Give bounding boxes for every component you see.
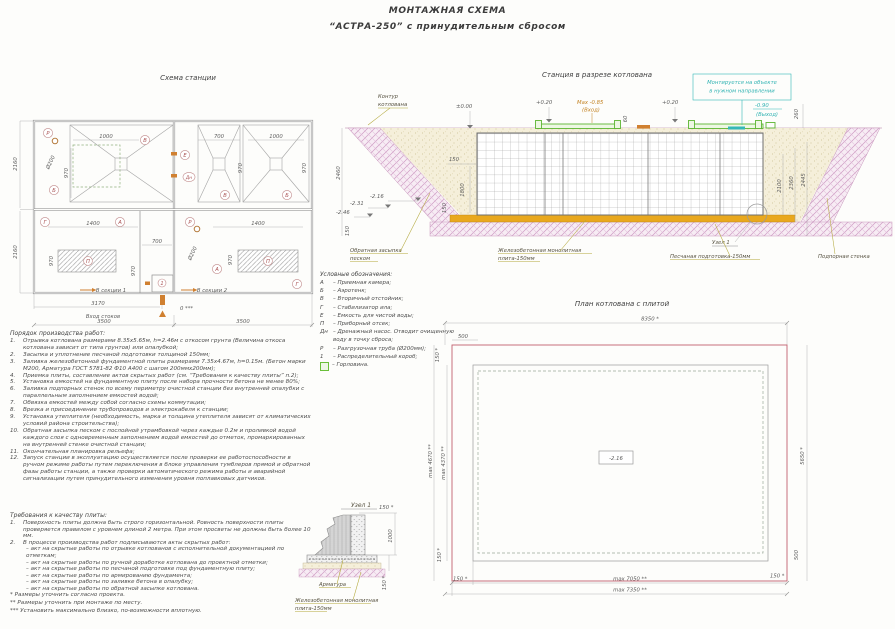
plan-title: Схема станции [160,74,216,82]
elev-246: -2.46 [336,210,350,216]
node-label-rebar: Арматура [318,582,346,588]
hidden-work-act: – акт на скрытые работы по отрывке котло… [10,546,312,559]
dim-2360: 2360 [789,176,795,190]
dim-1000-left: 1000 [99,134,113,140]
label-contour-1: Контур [378,94,399,100]
dim-3500-left: 3500 [97,319,111,325]
work-item: 10.Обратная засыпка песком с послойной у… [10,428,312,449]
dim-1000-right: 1000 [269,134,283,140]
dim-500-top: 500 [458,334,469,340]
outlet-note-2: в нужном направлении [709,89,775,95]
work-item: 2.Засыпка и уплотнение песчаной подготов… [10,352,312,359]
work-item: 9.Установка утеплителя (необходимость, м… [10,414,312,428]
manhole-icon [320,362,329,371]
dim-700-bottom: 700 [152,239,163,245]
work-item: 12.Запуск станции в эксплуатацию осущест… [10,455,312,483]
elev-020-a: +0.20 [536,100,553,106]
work-item: 7.Обвязка емкостей между собой согласно … [10,400,312,407]
pitplan-title: План котлована с плитой [575,300,670,308]
elev-0: ±0.00 [456,104,473,110]
elev-231: -2.31 [350,201,364,207]
work-item: 5.Установка емкостей на фундаментную пли… [10,379,312,386]
node-dim-150-top: 150 * [379,505,394,511]
label-B-topleft: Б [52,188,56,194]
dim-970-d: 970 [49,255,55,266]
dim-4670: max 4670 ** [428,444,434,478]
footnote: ** Размеры уточнить при монтаже по месту… [10,599,312,607]
dim-970-c: 970 [302,162,308,173]
dim-8350: 8350 * [641,317,659,323]
label-backfill-1: Обратная засыпка [350,248,402,254]
dim-500-right: 500 [794,549,800,560]
dim-970-e: 970 [131,265,137,276]
label-backfill-2: песком [350,256,370,262]
label-P-left: П [86,259,90,265]
hidden-work-act: – акт на скрытые работы по армированию ф… [10,573,312,580]
montage-scheme-sheet: МОНТАЖНАЯ СХЕМА “АСТРА-250” с принудител… [0,0,895,629]
dim-2460: 2460 [336,166,342,180]
label-contour-2: котлована [378,102,407,108]
label-DN: Дн [185,175,192,181]
label-B-topright: Б [285,193,289,199]
page-title: МОНТАЖНАЯ СХЕМА [0,6,895,16]
work-item: 3.Заливка железобетонной фундаментной пл… [10,359,312,373]
label-A-right: А [214,267,219,273]
legend-title: Условные обозначения: [320,272,460,278]
work-order: Порядок производства работ: 1.Отрывка ко… [10,330,312,483]
label-V-topleft: В [143,138,147,144]
label-P-right: П [266,259,270,265]
dim-970-f: 970 [228,254,234,265]
dim-2160-bottom: 2160 [13,245,19,259]
work-item: 11.Окончательная планировка рельефа; [10,449,312,456]
dim-7350: max 7350 ** [613,588,647,594]
dim-4370: max 4370 ** [441,446,447,480]
note-section2: В секции 2 [197,288,228,294]
elev-pit-216: -2.16 [609,456,623,462]
footnotes: * Размеры уточнить согласно проекта. ** … [10,591,312,615]
note-section1: В секции 1 [96,288,126,294]
work-item: 6.Заливка подпорных стенок по всему пери… [10,386,312,400]
footnote: *** Установить максимально близко, по-во… [10,607,312,615]
dim-700-top: 700 [214,134,225,140]
dim-5650: 5650 * [800,447,806,465]
dim-150-b: 150 [442,202,448,213]
dim-1800: 1800 [460,183,466,197]
node-dim-1000: 1000 [388,529,394,543]
req-item: 1.Поверхность плиты должна быть строго г… [10,520,312,540]
dim-970-a: 970 [64,167,70,178]
dim-7050: max 7050 ** [613,577,647,583]
dim-3170: 3170 [91,301,105,307]
dim-2445: 2445 [801,173,807,187]
dim-zero: 0 *** [180,306,193,312]
outlet-note-1: Монтируется на объекте [707,80,778,86]
req-item: 2.В процессе производства работ подписыв… [10,540,312,547]
dim-d200-bottom: Ø200 [186,245,199,262]
footnote: * Размеры уточнить согласно проекта. [10,591,312,599]
dim-1400-left: 1400 [86,221,100,227]
legend-item: А– Приемная камера; [320,279,460,287]
label-node1: Узел 1 [712,240,730,246]
dim-2160-top: 2160 [13,157,19,171]
dim-60: 60 [623,115,629,122]
pit-section-drawing: Станция в разрезе котлована ±0.00 +0.20 … [330,68,895,278]
label-slab-2: плита-150мм [498,256,535,262]
dim-3500-right: 3500 [236,319,250,325]
elev-max-inlet2: (Вход) [582,108,600,114]
node-detail-drawing: Узел 1 150 * 1000 150 * Арматура Железоб… [293,498,449,629]
node-title: Узел 1 [351,502,371,509]
node-dim-150-bottom: 150 * [382,575,388,590]
dim-1400-right: 1400 [251,221,265,227]
elev-out2: (Выход) [756,112,778,118]
dim-d200-top: Ø200 [44,154,57,171]
elev-020-b: +0.20 [662,100,679,106]
hidden-work-act: – акт на скрытые работы по заливке бетон… [10,579,312,586]
label-A-left: А [117,220,122,226]
dim-150-bottom: 150 * [453,577,468,583]
hidden-work-act: – акт на скрытые работы по ручной дорабо… [10,560,312,567]
work-item: 8.Врезка и присоединение трубопроводов и… [10,407,312,414]
work-item: 4.Приемка плиты, составление актов скрыт… [10,373,312,380]
label-V-topright: В [223,193,227,199]
label-sand-prep: Песчаная подготовка-150мм [670,254,750,260]
dim-260: 260 [794,108,800,119]
work-order-title: Порядок производства работ: [10,330,312,337]
elev-out: -0.90 [755,103,769,109]
label-slab-1: Железобетонная монолитная [497,248,582,254]
station-plan-drawing: Схема станции 2160 2160 1000 970 Р Ø200 [8,68,320,330]
page-subtitle: “АСТРА-250” с принудительным сбросом [0,22,895,32]
pit-plan-drawing: План котлована с плитой 8350 * 500 150 *… [425,293,895,609]
dim-150-a: 150 [449,157,460,163]
section-title: Станция в разрезе котлована [542,71,652,79]
dim-150-topleft: 150 * [435,347,441,362]
elev-max-inlet: Max -0.85 [577,100,604,106]
dim-150-botright: 150 * [770,574,785,580]
dim-2100: 2100 [777,179,783,193]
dim-150-c: 150 [345,225,351,236]
label-one-box: 1 [160,281,163,287]
label-retaining-wall: Подпорная стенка [818,254,870,260]
slab-requirements: Требования к качеству плиты: 1.Поверхнос… [10,512,312,593]
slab-requirements-title: Требования к качеству плиты: [10,512,312,519]
hidden-work-act: – акт на скрытые работы по песчаной подг… [10,566,312,573]
elev-216: -2.16 [370,194,384,200]
work-item: 1.Отрывка котлована размерами 8.35х5.65м… [10,338,312,352]
